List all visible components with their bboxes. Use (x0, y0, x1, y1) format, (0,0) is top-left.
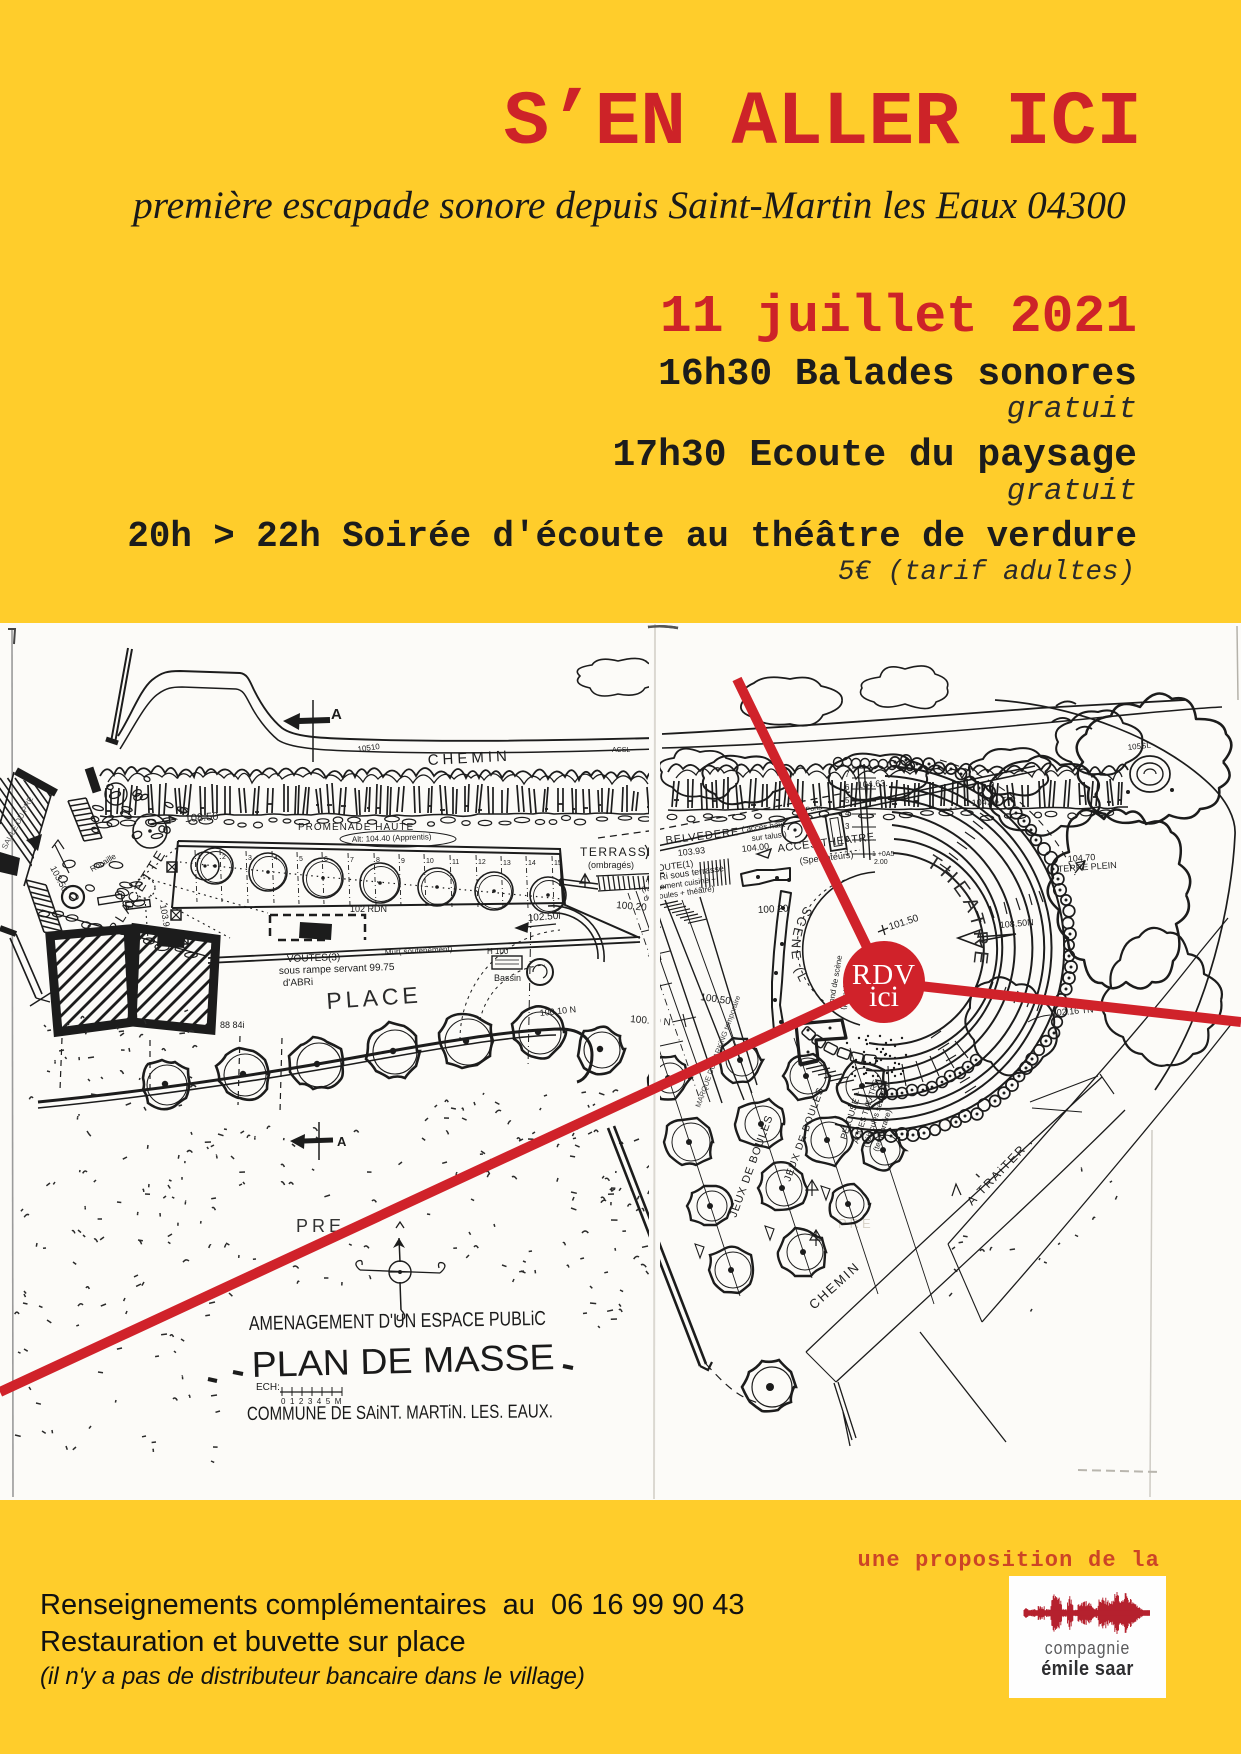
svg-text:11: 11 (452, 859, 459, 866)
svg-text:PLAN DE MASSE: PLAN DE MASSE (251, 1336, 555, 1385)
svg-text:103.93: 103.93 (677, 845, 705, 858)
svg-text:ECH:: ECH: (256, 1382, 280, 1393)
svg-text:A: A (337, 1134, 347, 1149)
svg-text:Mur( soutènement): Mur( soutènement) (385, 944, 453, 957)
svg-text:88 84i: 88 84i (220, 1020, 245, 1030)
svg-text:101.50: 101.50 (888, 913, 921, 933)
svg-text:A: A (331, 706, 342, 723)
svg-text:CHEMIN: CHEMIN (427, 748, 511, 769)
svg-text:102 RDN: 102 RDN (350, 904, 387, 914)
svg-text:102.50i: 102.50i (527, 911, 560, 924)
svg-text:7: 7 (845, 770, 850, 779)
svg-text:2.00: 2.00 (874, 859, 888, 866)
svg-text:1 +0A5: 1 +0A5 (872, 851, 894, 858)
svg-text:14: 14 (528, 860, 536, 867)
svg-text:ici: ici (869, 980, 899, 1013)
svg-text:9: 9 (401, 858, 405, 865)
svg-text:7: 7 (350, 857, 354, 864)
svg-text:100.50: 100.50 (700, 992, 732, 1007)
svg-text:4: 4 (845, 809, 850, 818)
svg-text:100 20: 100 20 (758, 903, 790, 916)
svg-text:TERRE PLEIN: TERRE PLEIN (1057, 860, 1117, 874)
svg-text:103.9: 103.9 (158, 904, 172, 928)
svg-text:108.50: 108.50 (184, 811, 218, 825)
svg-text:10: 10 (426, 858, 434, 865)
svg-text:THEATRE: THEATRE (923, 851, 992, 969)
svg-text:A TRAiTER .: A TRAiTER . (964, 1134, 1036, 1208)
svg-text:13: 13 (503, 860, 511, 867)
svg-text:Alt: 104.40 (Apprentis): Alt: 104.40 (Apprentis) (352, 832, 432, 844)
svg-text:15: 15 (554, 860, 562, 867)
svg-text:3: 3 (248, 855, 252, 862)
svg-text:5: 5 (845, 796, 850, 805)
svg-text:Rocaille: Rocaille (89, 851, 119, 873)
svg-text:104.63.: 104.63. (857, 778, 888, 790)
svg-text:5: 5 (299, 856, 303, 863)
svg-text:AMENAGEMENT D'UN ESPACE PUBLi: AMENAGEMENT D'UN ESPACE PUBLiC (249, 1308, 546, 1335)
svg-text:PLACE: PLACE (326, 981, 423, 1014)
svg-text:TERRASSE: TERRASSE (580, 845, 657, 859)
svg-text:VOUTES(3): VOUTES(3) (287, 952, 341, 965)
svg-text:SCENE (L: SCENE (L (788, 904, 815, 987)
svg-text:104.00: 104.00 (741, 841, 769, 854)
svg-text:100 20: 100 20 (616, 900, 648, 914)
svg-text:ACSL: ACSL (612, 747, 630, 754)
svg-text:H 100: H 100 (487, 947, 509, 956)
svg-text:d'ABRi: d'ABRi (283, 977, 314, 989)
svg-text:COMMUNE DE SAiNT. MARTiN. LE: COMMUNE DE SAiNT. MARTiN. LES. EAUX. (247, 1401, 553, 1425)
svg-text:12: 12 (478, 859, 486, 866)
svg-text:JEUX DE BOULES: JEUX DE BOULES (782, 1086, 826, 1183)
svg-text:(ombragés): (ombragés) (588, 860, 634, 870)
svg-text:3: 3 (845, 822, 850, 831)
svg-text:104.64 TN: 104.64 TN (971, 794, 1014, 808)
